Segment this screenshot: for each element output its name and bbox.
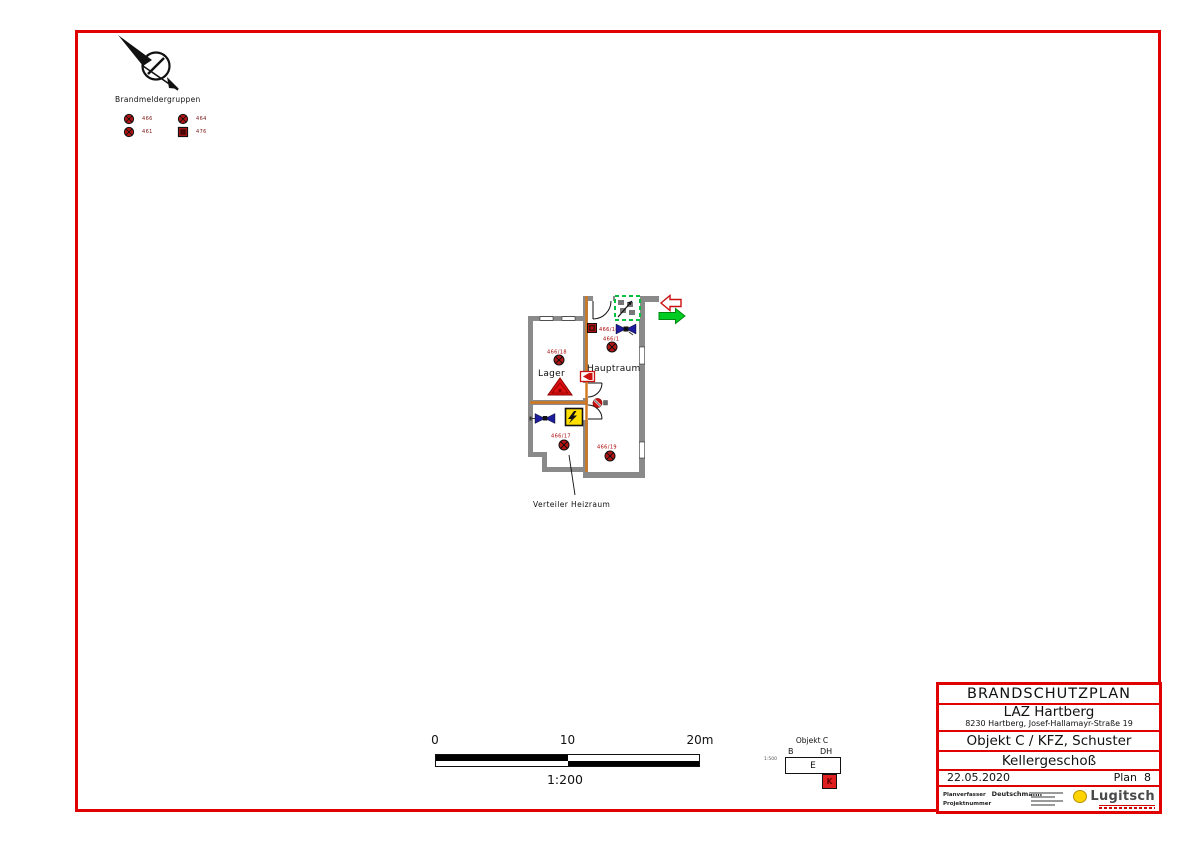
minimap-building-label: E xyxy=(810,761,816,771)
detector-square-icon xyxy=(177,126,189,138)
detector-circle-icon xyxy=(177,113,189,125)
minimap-marker: K xyxy=(822,774,837,789)
legend-item: 466 xyxy=(123,113,153,125)
electrical-hazard-icon xyxy=(566,409,583,426)
lugitsch-logo: Lugitsch xyxy=(1071,789,1155,810)
minimap-building: E xyxy=(785,757,841,774)
detector-label: 466/1 xyxy=(603,337,619,343)
exit-arrow-left-icon xyxy=(661,296,681,311)
minimap-marker-label: K xyxy=(827,777,833,786)
north-arrow-icon xyxy=(112,30,192,94)
scale-bar: 0 10 20m 1:200 xyxy=(425,733,715,793)
leader-line xyxy=(569,455,575,495)
site-minimap: Objekt C B DH 1:500 E K xyxy=(764,736,859,794)
floor-name: Kellergeschoß xyxy=(939,752,1159,771)
logo-tagline xyxy=(1099,807,1155,809)
fire-alarm-groups-legend: Brandmeldergruppen 466 464 461 xyxy=(115,95,245,147)
prohibition-sign-icon xyxy=(593,398,608,407)
plan-sheet: Brandmeldergruppen 466 464 461 xyxy=(0,0,1191,842)
room-label-lager: Lager xyxy=(538,369,565,379)
alarm-sounder-icon xyxy=(581,372,595,382)
author-label: Planverfasser xyxy=(943,792,986,798)
minimap-title: Objekt C xyxy=(786,736,838,745)
client-name: LAZ Hartberg xyxy=(1004,706,1095,720)
client-address: 8230 Hartberg, Josef-Hallamayr-Straße 19 xyxy=(965,720,1133,728)
detector-label: 466/19 xyxy=(597,445,617,451)
smoke-detector-icon xyxy=(554,355,564,365)
logo-text: Lugitsch xyxy=(1090,789,1155,804)
manual-call-point-icon xyxy=(588,324,597,333)
scale-bar-graphic xyxy=(435,754,700,767)
legend-title: Brandmeldergruppen xyxy=(115,95,201,104)
scale-ratio: 1:200 xyxy=(510,772,620,787)
legend-item: 461 xyxy=(123,126,153,138)
floor-plan: 466/16 466/1 Hauptraum L xyxy=(523,288,698,518)
logo-mark-icon xyxy=(1073,790,1087,803)
detector-label: 466/18 xyxy=(547,350,567,356)
legend-item-label: 461 xyxy=(142,129,153,135)
signature-cell: Planverfasser Deutschmann Projektnummer … xyxy=(939,787,1159,812)
legend-item: 476 xyxy=(177,126,207,138)
object-name: Objekt C / KFZ, Schuster xyxy=(939,732,1159,753)
detector-circle-icon xyxy=(123,113,135,125)
minimap-label-dh: DH xyxy=(820,747,832,756)
plan-meta: Planverfasser Deutschmann Projektnummer xyxy=(943,789,1027,810)
escape-arrow-right-icon xyxy=(659,309,685,324)
smoke-detector-icon xyxy=(607,342,617,352)
title-block: BRANDSCHUTZPLAN LAZ Hartberg 8230 Hartbe… xyxy=(936,682,1162,814)
doc-title: BRANDSCHUTZPLAN xyxy=(939,685,1159,705)
stairs-icon xyxy=(615,296,640,320)
scale-tick: 0 xyxy=(429,733,441,747)
plan-number: Plan 8 xyxy=(1114,771,1151,784)
smoke-detector-icon xyxy=(605,451,615,461)
plan-date: 22.05.2020 xyxy=(947,771,1010,784)
fire-extinguisher-icon xyxy=(548,378,572,395)
detector-label: 466/17 xyxy=(551,434,571,440)
siren-icon xyxy=(530,414,556,424)
legend-item: 464 xyxy=(177,113,207,125)
legend-item-label: 476 xyxy=(196,129,207,135)
minimap-label-b: B xyxy=(788,747,794,756)
siren-icon xyxy=(616,324,636,335)
small-print xyxy=(1031,789,1067,810)
smoke-detector-icon xyxy=(559,440,569,450)
legend-item-label: 466 xyxy=(142,116,153,122)
detector-circle-icon xyxy=(123,126,135,138)
logo-underline xyxy=(1099,805,1155,807)
scale-tick: 10 xyxy=(555,733,580,747)
client-cell: LAZ Hartberg 8230 Hartberg, Josef-Hallam… xyxy=(939,705,1159,732)
minimap-scale: 1:500 xyxy=(764,757,777,762)
legend-item-label: 464 xyxy=(196,116,207,122)
date-plan-cell: 22.05.2020 Plan 8 xyxy=(939,771,1159,787)
scale-tick: 20m xyxy=(683,733,717,747)
plan-caption: Verteiler Heizraum xyxy=(533,500,610,509)
project-label: Projektnummer xyxy=(943,801,991,807)
